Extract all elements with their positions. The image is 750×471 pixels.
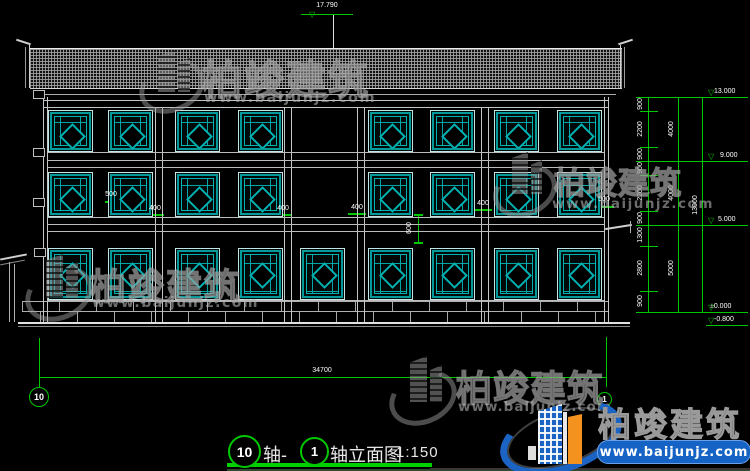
title-scale: 1:150 — [396, 444, 439, 461]
roof-end — [624, 47, 625, 88]
axis-bubble-10: 10 — [29, 387, 49, 407]
level-line — [636, 225, 748, 226]
hm-line — [375, 291, 406, 292]
hm-line — [437, 291, 468, 292]
hm-line — [501, 185, 532, 186]
dim-total: 5000 — [668, 253, 676, 283]
dim-500-right: 500 — [593, 196, 615, 204]
lattice-window — [108, 248, 153, 300]
company-logo: 柏竣建筑 www.baijunjz.com — [492, 396, 750, 468]
logo-brand: 柏竣建筑 — [598, 398, 742, 446]
hm-line — [55, 122, 86, 123]
level-line — [636, 161, 748, 162]
hm-line — [55, 185, 86, 186]
wall-corbel — [33, 148, 45, 157]
vm-line — [442, 179, 443, 210]
dim-600-line — [418, 214, 419, 244]
watermark-building-icon — [430, 365, 442, 402]
lattice-window — [557, 248, 602, 300]
lattice-window — [430, 172, 475, 217]
dim-segment: 900 — [637, 286, 645, 316]
roof-end — [620, 45, 621, 88]
overall-dim-line — [39, 377, 607, 378]
overall-dim-text: 34700 — [300, 367, 344, 375]
annex-wall — [9, 262, 10, 322]
lattice-window — [494, 248, 539, 300]
lattice-window — [48, 172, 93, 217]
lattice-window — [108, 110, 153, 152]
hm-line — [245, 291, 276, 292]
dim-tick — [414, 242, 423, 244]
dim-total: 4000 — [668, 114, 676, 144]
lattice-window — [430, 248, 475, 300]
hm-line — [245, 122, 276, 123]
level-line — [636, 312, 748, 313]
ground-line-lower — [18, 326, 630, 327]
level-triangle-icon: ▽ — [708, 317, 714, 325]
vm-line — [380, 179, 381, 210]
cad-elevation-drawing: 17.790 ▽ 500 500 600 34700 10 1 10 轴- 1 … — [0, 0, 750, 471]
floor-band-line — [47, 224, 604, 225]
logo-url: www.baijunjz.com — [600, 445, 749, 460]
dim-total: 4000 — [668, 178, 676, 208]
floor-band-line — [47, 160, 604, 161]
ridge-level-text: 17.790 — [305, 2, 349, 10]
ground-line — [18, 322, 630, 324]
level-text: 9.000 — [720, 152, 738, 160]
annex-roof-line — [0, 260, 25, 266]
hm-line — [501, 122, 532, 123]
lattice-window — [300, 248, 345, 300]
lattice-window — [557, 172, 602, 217]
lattice-window — [368, 172, 413, 217]
pilaster — [155, 107, 163, 322]
roof-end — [29, 45, 30, 88]
level-text: -0.800 — [714, 316, 734, 324]
annex-wall — [14, 264, 15, 322]
wall-corbel — [34, 248, 46, 257]
dim-400: 400 — [146, 205, 164, 213]
level-triangle-icon: ▽ — [708, 153, 714, 161]
hm-line — [564, 291, 595, 292]
eave-line — [36, 88, 616, 89]
hm-line — [564, 122, 595, 123]
fascia-line — [43, 100, 608, 101]
hm-line — [437, 185, 468, 186]
floor-band-line — [47, 300, 604, 301]
hm-line — [115, 291, 146, 292]
roof-upturn — [618, 39, 633, 46]
dim-overall-height: 13000 — [692, 190, 700, 220]
dim-600: 600 — [406, 216, 414, 240]
lattice-window — [48, 248, 93, 300]
wall-corbel — [33, 198, 45, 207]
vm-line — [569, 179, 570, 210]
dim-500-left: 500 — [99, 191, 123, 199]
level-triangle-icon: ▽ — [708, 217, 714, 225]
level-triangle-icon: ▽ — [309, 11, 315, 19]
dim-segment: 1300 — [637, 220, 645, 250]
fascia-line — [43, 107, 608, 108]
roof-end — [25, 47, 26, 88]
hm-line — [501, 291, 532, 292]
level-text: 13.000 — [714, 88, 735, 96]
hm-line — [375, 185, 406, 186]
hm-line — [182, 185, 213, 186]
logo-building-block — [528, 446, 536, 460]
hm-line — [182, 291, 213, 292]
lattice-window — [175, 110, 220, 152]
dim-chain-line — [702, 97, 703, 312]
hm-line — [307, 291, 338, 292]
logo-building-icon-orange — [568, 414, 582, 464]
lattice-window — [238, 248, 283, 300]
lattice-window — [557, 110, 602, 152]
hm-line — [182, 122, 213, 123]
frame-edge-line — [430, 468, 750, 470]
hm-line — [245, 185, 276, 186]
level-triangle-icon: ▽ — [708, 304, 714, 312]
dim-segment: 2800 — [637, 253, 645, 283]
lattice-window — [430, 110, 475, 152]
eave-line — [36, 94, 616, 95]
hm-line — [55, 291, 86, 292]
title-axis-bubble-1: 1 — [300, 437, 329, 466]
dim-400: 400 — [348, 204, 366, 212]
dim-400: 400 — [474, 200, 492, 208]
wall-corbel — [33, 90, 45, 99]
vm-line — [506, 179, 507, 210]
tiled-roof — [30, 48, 622, 89]
lattice-window — [238, 110, 283, 152]
lattice-window — [368, 248, 413, 300]
watermark-swoosh-icon — [380, 360, 465, 436]
title-name: 轴立面图 — [330, 441, 402, 467]
wall-edge — [604, 97, 605, 322]
vm-line — [60, 179, 61, 210]
vm-line — [250, 179, 251, 210]
dim-400: 400 — [274, 205, 292, 213]
roof-upturn — [16, 39, 31, 46]
dim-tick — [414, 214, 423, 216]
hm-line — [564, 185, 595, 186]
floor-band-line — [47, 217, 604, 218]
pilaster — [481, 107, 489, 322]
logo-building-gap — [563, 412, 567, 464]
pilaster — [357, 107, 365, 322]
pilaster — [284, 107, 292, 322]
hm-line — [115, 122, 146, 123]
axis-extension-left — [39, 338, 40, 392]
hm-line — [115, 185, 146, 186]
axis-extension-right — [606, 337, 607, 387]
watermark-url: www.baijunjz.com — [204, 90, 376, 106]
level-text: 5.000 — [718, 216, 736, 224]
floor-band-line — [47, 167, 604, 168]
dim-chain-line — [678, 97, 679, 312]
logo-url-bar: www.baijunjz.com — [597, 440, 750, 464]
dim-chain-line — [648, 97, 649, 312]
lattice-window — [494, 110, 539, 152]
hm-line — [375, 122, 406, 123]
lattice-window — [368, 110, 413, 152]
vm-line — [187, 179, 188, 210]
ridge-leader-line — [333, 15, 334, 48]
hm-line — [437, 122, 468, 123]
level-line — [636, 97, 748, 98]
watermark-building-icon — [410, 356, 427, 402]
lattice-window — [48, 110, 93, 152]
lattice-window — [494, 172, 539, 217]
lattice-window — [175, 248, 220, 300]
lattice-window — [175, 172, 220, 217]
title-axis-bubble-10: 10 — [228, 435, 261, 468]
side-eave-edge — [630, 221, 631, 233]
level-triangle-icon: ▽ — [708, 89, 714, 97]
title-joiner: 轴- — [263, 441, 287, 467]
wall-edge — [43, 97, 44, 322]
logo-building-icon — [538, 404, 562, 464]
side-eave-line — [605, 224, 632, 230]
wall-edge — [608, 97, 609, 322]
floor-band-line — [47, 152, 604, 153]
floor-band-line — [47, 231, 604, 232]
level-line — [706, 325, 748, 326]
